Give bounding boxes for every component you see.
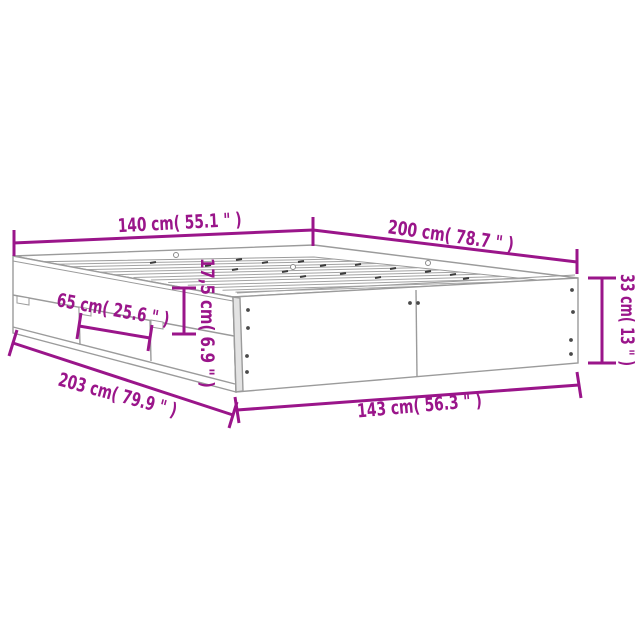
dimension-line-side-height — [588, 278, 616, 363]
bed-frame-dimension-diagram: 140 cm( 55.1 " ) 200 cm( 78.7 " ) 33 cm(… — [0, 0, 640, 640]
label-base-width: 143 cm( 56.3 " ) — [356, 390, 482, 423]
bed-end-face — [233, 278, 578, 392]
product-dimension-image: 140 cm( 55.1 " ) 200 cm( 78.7 " ) 33 cm(… — [0, 0, 640, 640]
label-top-length: 200 cm( 78.7 " ) — [386, 216, 515, 255]
label-side-height: 33 cm( 13 " ) — [616, 274, 638, 366]
label-rail-height: 17,5 cm( 6.9 " ) — [196, 258, 218, 388]
